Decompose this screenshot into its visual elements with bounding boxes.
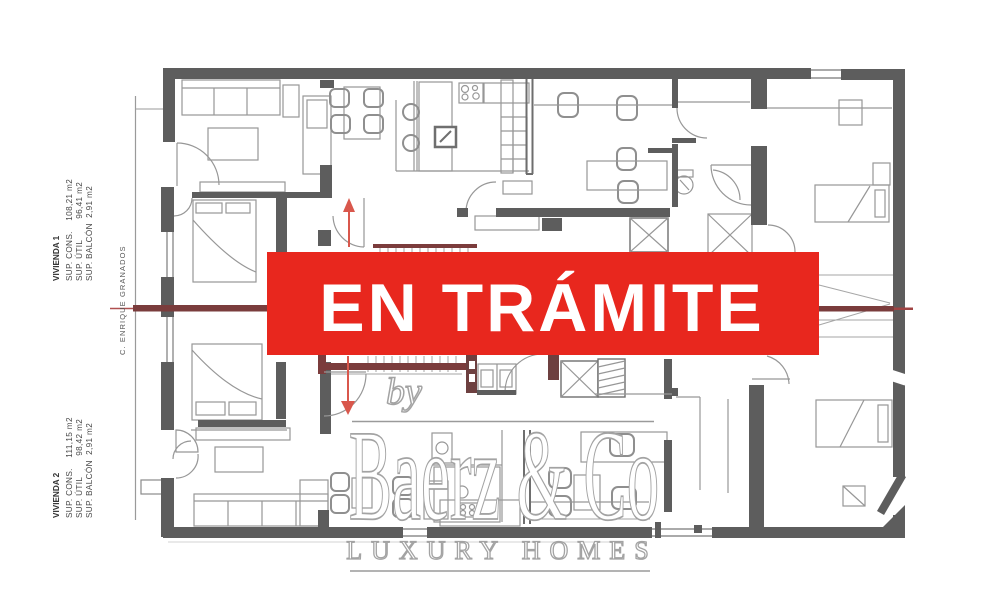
svg-text:SUP. ÚTIL 96,41 m2: SUP. ÚTIL 96,41 m2 (74, 182, 84, 281)
svg-text:SUP. ÚTIL 98,42 m2: SUP. ÚTIL 98,42 m2 (74, 419, 84, 518)
svg-text:VIVIENDA 1: VIVIENDA 1 (52, 235, 61, 281)
svg-text:SUP. BALCÓN 2,91 m2: SUP. BALCÓN 2,91 m2 (84, 186, 94, 281)
svg-text:SUP. BALCÓN 2,91 m2: SUP. BALCÓN 2,91 m2 (84, 423, 94, 518)
svg-text:SUP. CONS. 108,21 m2: SUP. CONS. 108,21 m2 (65, 179, 74, 281)
svg-text:EN TRÁMITE: EN TRÁMITE (319, 270, 765, 346)
svg-text:VIVIENDA 2: VIVIENDA 2 (52, 472, 61, 518)
svg-text:Baerz & Co: Baerz & Co (349, 404, 659, 548)
svg-text:C. ENRIQUE GRANADOS: C. ENRIQUE GRANADOS (118, 245, 127, 355)
svg-text:LUXURY HOMES: LUXURY HOMES (346, 536, 657, 565)
svg-text:SUP. CONS. 111,15 m2: SUP. CONS. 111,15 m2 (65, 417, 74, 518)
